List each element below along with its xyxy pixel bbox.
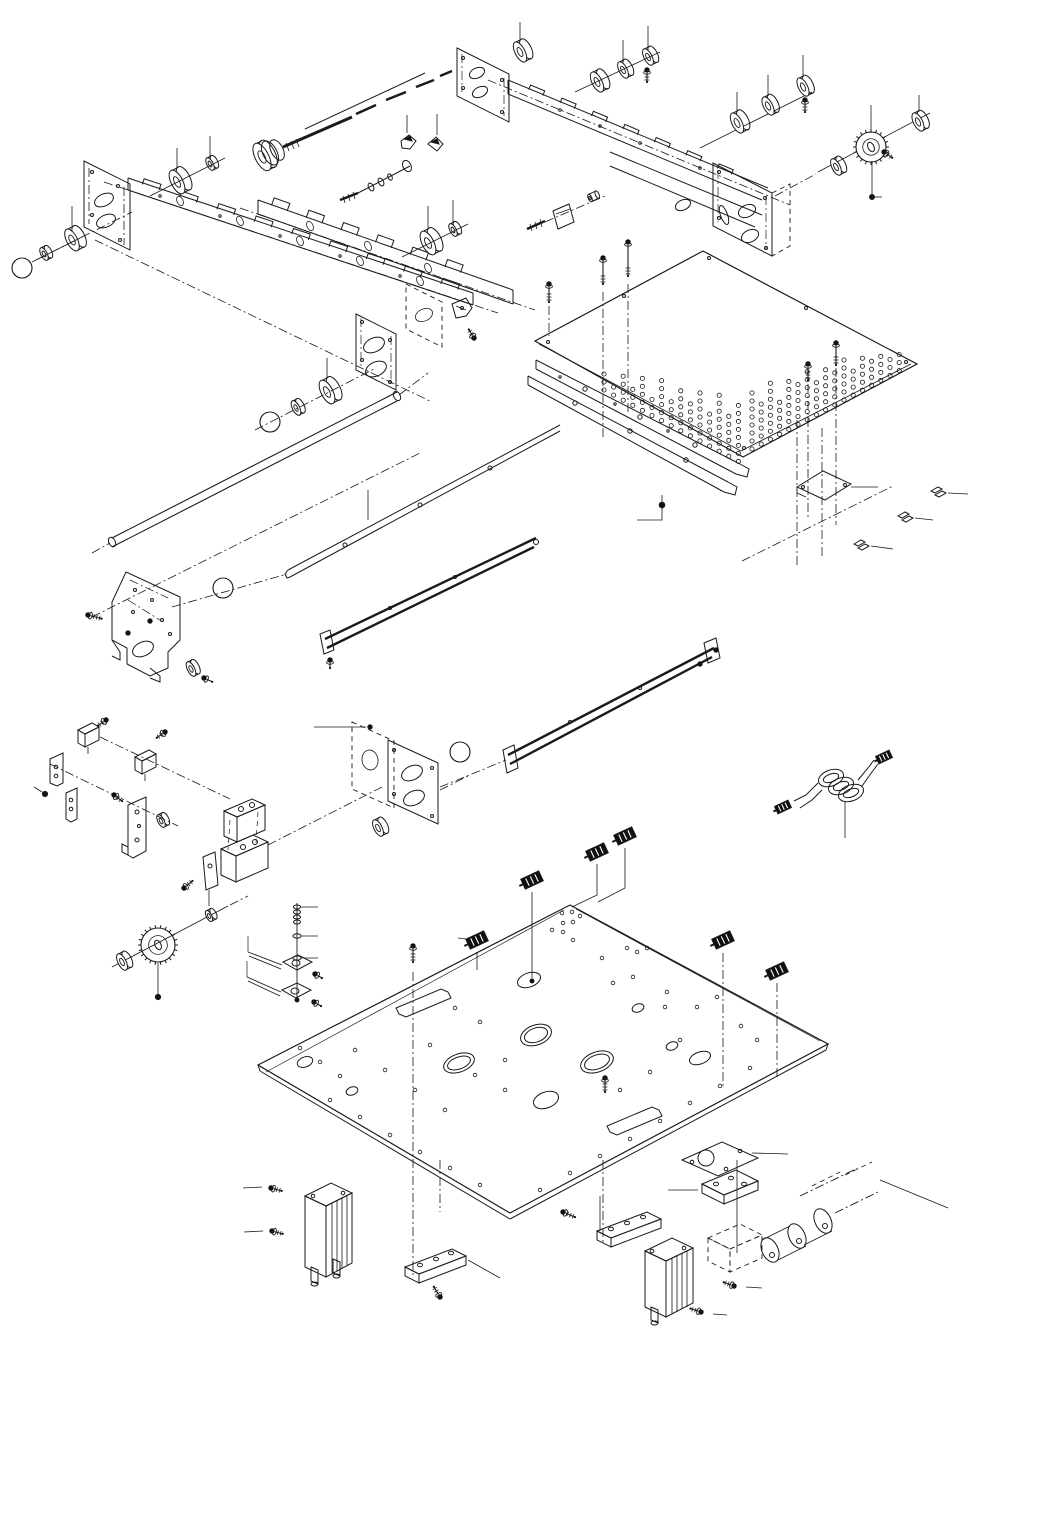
io-connector-2	[519, 871, 543, 983]
io-connector-4	[598, 827, 636, 902]
left-roller-set	[12, 206, 89, 278]
top-right-end-plate-left	[457, 48, 509, 122]
damper-block-right	[645, 1238, 762, 1325]
adjuster-screw-block	[527, 190, 605, 231]
upper-roller-set-left	[150, 136, 225, 196]
diagram-page	[0, 0, 1043, 1536]
link-clamp-2	[247, 961, 322, 1007]
sensor-switch-1	[78, 717, 109, 754]
guide-rail-rear	[503, 638, 720, 773]
foot-bar-left	[405, 1249, 500, 1300]
plate-screws-left	[546, 239, 632, 440]
sensor-bracket-2	[34, 787, 77, 822]
io-connector-5	[710, 931, 734, 1086]
frame-end-plate	[356, 314, 396, 390]
perforated-top-plate	[535, 251, 917, 464]
wire-harness-coil	[773, 750, 892, 838]
drive-shaft-coupling	[249, 71, 452, 173]
top-right-end-plate-right	[713, 163, 790, 256]
right-bearing-shaft-upper	[700, 55, 817, 148]
sensor-axis-lines	[50, 737, 384, 845]
tension-screw-set	[340, 114, 443, 203]
guide-rail-front	[320, 538, 539, 669]
damper-block-left	[243, 1183, 352, 1286]
base-plate	[258, 905, 828, 1276]
mount-strip-b	[528, 376, 737, 520]
top-right-roller-set-a	[511, 22, 661, 94]
sensor-switch-2	[135, 729, 168, 781]
carriage-bracket-left	[85, 572, 233, 683]
gear-pulley-set	[112, 890, 248, 1000]
right-bearing-shaft-lower	[775, 95, 932, 200]
io-connector-3	[572, 843, 608, 907]
carriage-bracket-right	[314, 722, 470, 838]
upper-notched-rail	[104, 178, 498, 313]
carriage-shaft-tube	[92, 373, 428, 553]
sensor-mount-plate	[111, 792, 171, 858]
lower-notched-rail	[240, 198, 535, 310]
clamp-plate-small	[797, 471, 878, 500]
solenoid-valve-block	[181, 799, 268, 891]
io-connector-1	[458, 931, 488, 970]
foot-bar-right	[560, 1196, 661, 1247]
link-clamp-1	[248, 936, 323, 979]
left-side-frame-plate	[84, 161, 130, 250]
frame-end-plate-hidden	[406, 284, 442, 347]
exploded-parts-diagram	[0, 0, 1043, 1536]
cable-carrier-chain	[708, 1162, 948, 1272]
